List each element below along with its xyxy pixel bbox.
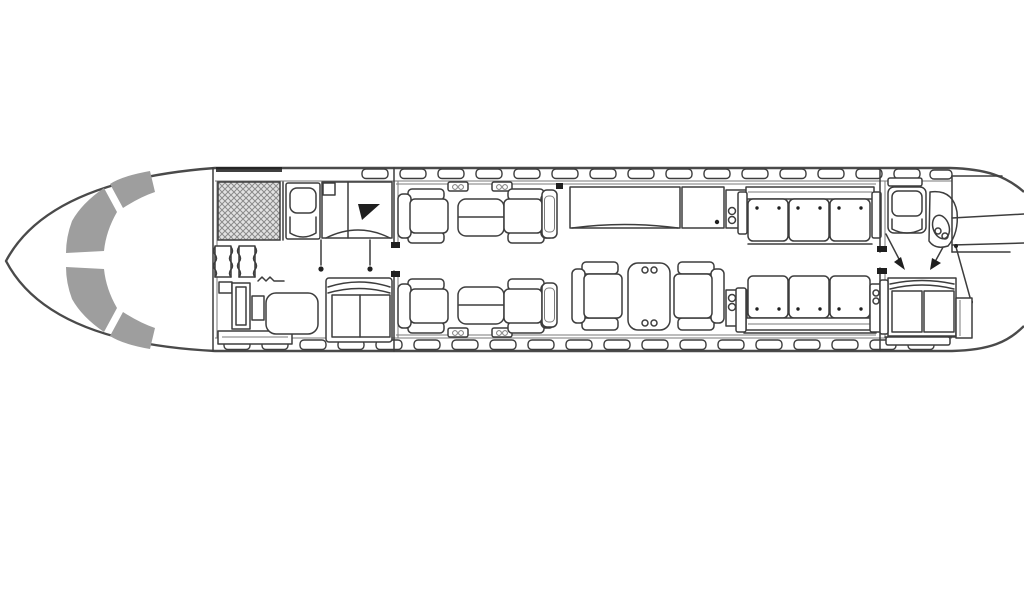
lavatory-door-swing	[954, 244, 973, 304]
forward-cabinet	[322, 182, 392, 238]
conference-seat-aft	[674, 262, 724, 330]
aft-cabinet	[682, 187, 724, 228]
ottoman	[266, 293, 318, 334]
club-seat-bottom-forward	[398, 279, 448, 333]
floor-plan-page	[0, 0, 1024, 614]
conference-table	[628, 263, 670, 330]
mid-console-top	[542, 183, 563, 238]
mid-console-bottom	[542, 283, 557, 327]
toilet	[929, 192, 957, 248]
aft-sofa	[880, 278, 958, 345]
floor-plan-drawing	[0, 0, 1024, 614]
vestibule-door-tracks	[318, 240, 372, 272]
cabin-windows-top	[362, 169, 952, 179]
entry-vestibule-curtains	[214, 246, 257, 277]
forward-single-seat	[286, 183, 320, 239]
aft-wardrobe	[956, 298, 972, 338]
aft-chair	[888, 178, 926, 233]
divan-bottom	[736, 276, 882, 333]
divan-top	[738, 187, 881, 244]
baggage-compartment	[952, 176, 1024, 252]
club-table-top	[458, 199, 504, 236]
conference-seat-forward	[572, 262, 622, 330]
forward-settee	[326, 278, 392, 342]
club-table-bottom	[458, 287, 504, 324]
credenza	[570, 187, 680, 228]
galley	[218, 182, 283, 240]
club-seat-top-forward	[398, 189, 448, 243]
